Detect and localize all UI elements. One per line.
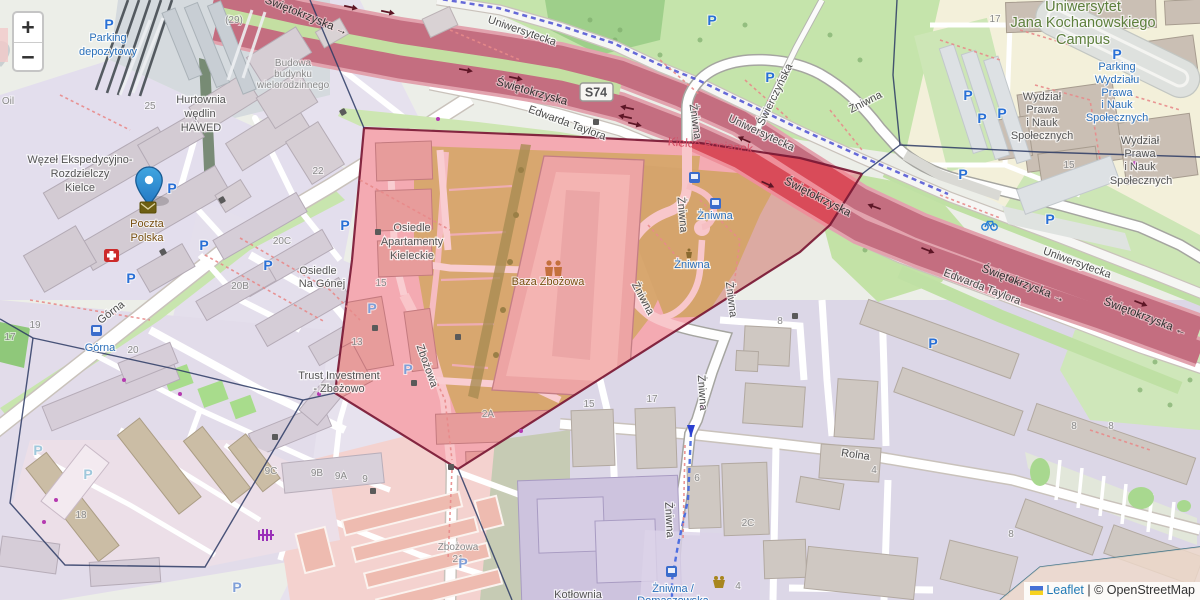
svg-text:Żniwna: Żniwna: [697, 209, 733, 222]
svg-text:Trust Investment: Trust Investment: [298, 370, 380, 382]
svg-text:2C: 2C: [742, 518, 755, 529]
svg-text:Rozdzielczy: Rozdzielczy: [51, 168, 110, 180]
svg-text:Społecznych: Społecznych: [1086, 112, 1148, 124]
svg-text:P: P: [963, 87, 972, 103]
svg-text:Węzeł Ekspedycyjno-: Węzeł Ekspedycyjno-: [27, 154, 132, 166]
svg-text:P: P: [997, 105, 1006, 121]
svg-text:4: 4: [871, 465, 877, 476]
svg-text:20B: 20B: [231, 281, 249, 292]
svg-text:i Nauk: i Nauk: [1124, 161, 1156, 173]
svg-text:Campus: Campus: [1056, 32, 1110, 48]
svg-text:P: P: [707, 12, 716, 28]
svg-text:Wydział: Wydział: [1023, 91, 1062, 103]
svg-text:P: P: [83, 466, 92, 482]
svg-text:17: 17: [4, 332, 16, 343]
svg-text:Kielce: Kielce: [65, 182, 95, 194]
svg-text:20: 20: [127, 345, 139, 356]
svg-text:8: 8: [1008, 529, 1014, 540]
svg-text:9C: 9C: [265, 466, 278, 477]
svg-text:13: 13: [351, 337, 363, 348]
svg-text:Apartamenty: Apartamenty: [381, 236, 444, 248]
svg-text:P: P: [232, 579, 241, 595]
svg-text:i Nauk: i Nauk: [1026, 117, 1058, 129]
svg-text:P: P: [1112, 46, 1121, 62]
svg-text:Wydział: Wydział: [1121, 135, 1160, 147]
svg-text:P: P: [458, 555, 467, 571]
svg-text:Społecznych: Społecznych: [1011, 130, 1073, 142]
svg-text:Osiedle: Osiedle: [393, 222, 430, 234]
svg-text:P: P: [403, 361, 412, 377]
svg-text:15: 15: [1063, 160, 1075, 171]
svg-text:- Zbożowo: - Zbożowo: [313, 383, 364, 395]
svg-text:Żniwna /: Żniwna /: [652, 582, 695, 595]
svg-text:9B: 9B: [311, 468, 324, 479]
svg-text:8: 8: [1108, 421, 1114, 432]
svg-text:P: P: [167, 180, 176, 196]
svg-text:Poczta: Poczta: [130, 218, 165, 230]
svg-text:Prawa: Prawa: [1026, 104, 1058, 116]
svg-text:P: P: [928, 335, 937, 351]
svg-text:Kieleckie: Kieleckie: [390, 250, 434, 262]
svg-text:Żniwna: Żniwna: [662, 502, 677, 539]
svg-text:2A: 2A: [482, 409, 495, 420]
svg-text:17: 17: [989, 14, 1001, 25]
svg-text:18: 18: [75, 510, 87, 521]
svg-text:Polska: Polska: [130, 232, 164, 244]
svg-text:8: 8: [1071, 421, 1077, 432]
svg-text:P: P: [263, 257, 272, 273]
svg-text:25: 25: [144, 101, 156, 112]
svg-text:Jana Kochanowskiego: Jana Kochanowskiego: [1010, 15, 1155, 31]
svg-text:Parking: Parking: [1098, 61, 1135, 73]
svg-text:15: 15: [583, 399, 595, 410]
svg-text:budynku: budynku: [274, 69, 312, 80]
svg-text:Uniwersytet: Uniwersytet: [1045, 0, 1121, 15]
svg-text:wędlin: wędlin: [183, 108, 215, 120]
svg-text:i Nauk: i Nauk: [1101, 99, 1133, 111]
svg-text:Zbożowa: Zbożowa: [438, 542, 479, 553]
svg-text:S74: S74: [585, 86, 607, 100]
svg-text:depozytowy: depozytowy: [79, 46, 138, 58]
svg-text:9: 9: [362, 474, 368, 485]
svg-text:Budowa: Budowa: [275, 58, 312, 69]
svg-text:HAWED: HAWED: [181, 122, 222, 134]
svg-text:P: P: [765, 69, 774, 85]
svg-text:8: 8: [777, 316, 783, 327]
svg-text:Górna: Górna: [85, 342, 116, 354]
svg-text:P: P: [199, 237, 208, 253]
svg-text:P: P: [1045, 211, 1054, 227]
svg-text:Osiedle: Osiedle: [299, 265, 336, 277]
svg-text:wielorodzinnego: wielorodzinnego: [256, 80, 330, 91]
svg-text:17: 17: [646, 394, 658, 405]
svg-text:Społecznych: Społecznych: [1110, 175, 1172, 187]
svg-text:Baza Zbożowa: Baza Zbożowa: [512, 276, 586, 288]
svg-text:Wydziału: Wydziału: [1095, 74, 1140, 86]
svg-text:4: 4: [735, 581, 741, 592]
svg-text:Domaszowska: Domaszowska: [637, 595, 709, 600]
svg-text:Prawa: Prawa: [1101, 87, 1133, 99]
svg-text:15: 15: [375, 278, 387, 289]
svg-text:P: P: [126, 270, 135, 286]
svg-text:(29): (29): [225, 15, 243, 26]
svg-text:9A: 9A: [335, 471, 348, 482]
svg-text:P: P: [340, 217, 349, 233]
svg-text:P: P: [958, 166, 967, 182]
svg-text:Prawa: Prawa: [1124, 148, 1156, 160]
svg-text:Żniwna: Żniwna: [674, 258, 710, 271]
svg-text:Kotłownia: Kotłownia: [554, 589, 603, 600]
svg-text:Oil: Oil: [2, 96, 14, 107]
svg-text:Żniwna: Żniwna: [695, 375, 711, 412]
svg-text:6: 6: [694, 473, 700, 484]
svg-text:Parking: Parking: [89, 32, 126, 44]
svg-text:22: 22: [312, 166, 324, 177]
svg-text:Hurtownia: Hurtownia: [176, 94, 226, 106]
svg-text:P: P: [367, 300, 376, 316]
svg-text:Na Gónej: Na Gónej: [299, 278, 345, 290]
svg-text:19: 19: [29, 320, 41, 331]
svg-text:20C: 20C: [273, 236, 291, 247]
svg-text:P: P: [104, 16, 113, 32]
svg-text:P: P: [977, 110, 986, 126]
svg-text:P: P: [33, 442, 42, 458]
